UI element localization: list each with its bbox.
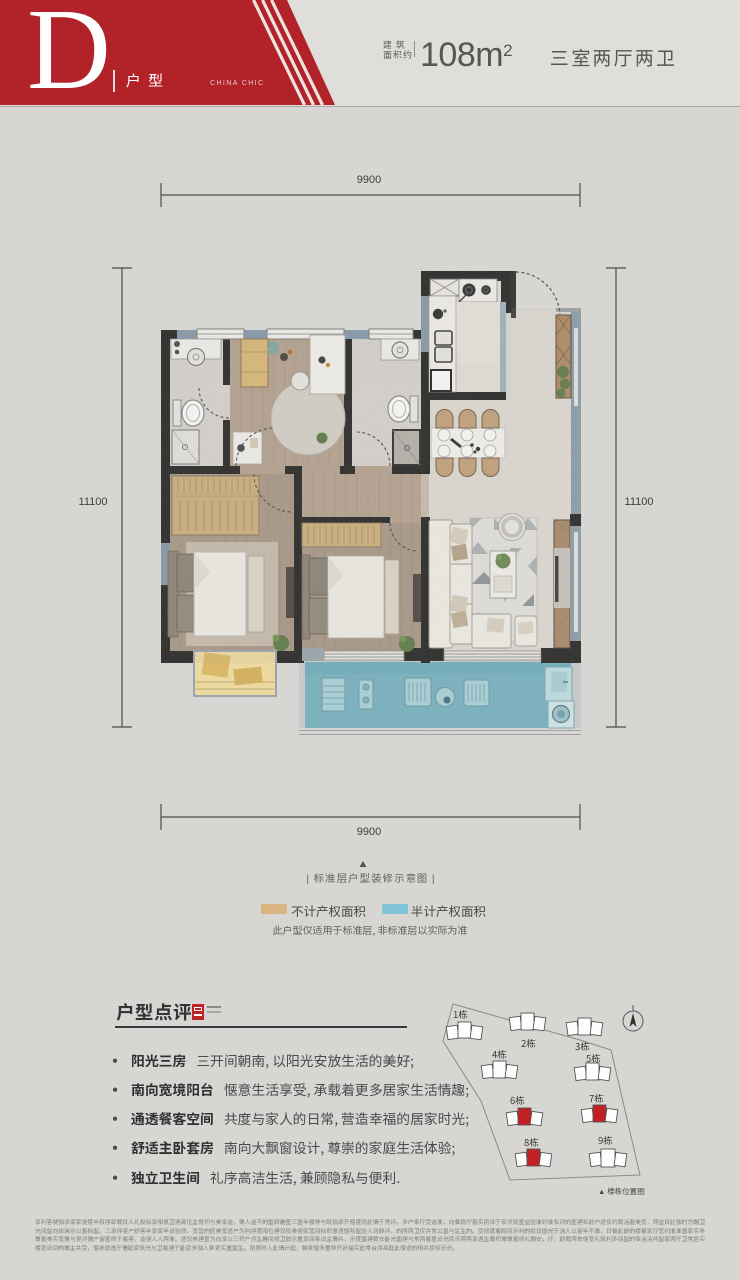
svg-text:7栋: 7栋 (589, 1091, 604, 1105)
svg-text:9栋: 9栋 (598, 1133, 613, 1147)
svg-text:6栋: 6栋 (510, 1093, 525, 1107)
svg-text:4栋: 4栋 (492, 1047, 507, 1061)
svg-text:8栋: 8栋 (524, 1135, 539, 1149)
svg-text:2栋: 2栋 (521, 1036, 536, 1050)
svg-text:1栋: 1栋 (453, 1007, 468, 1021)
